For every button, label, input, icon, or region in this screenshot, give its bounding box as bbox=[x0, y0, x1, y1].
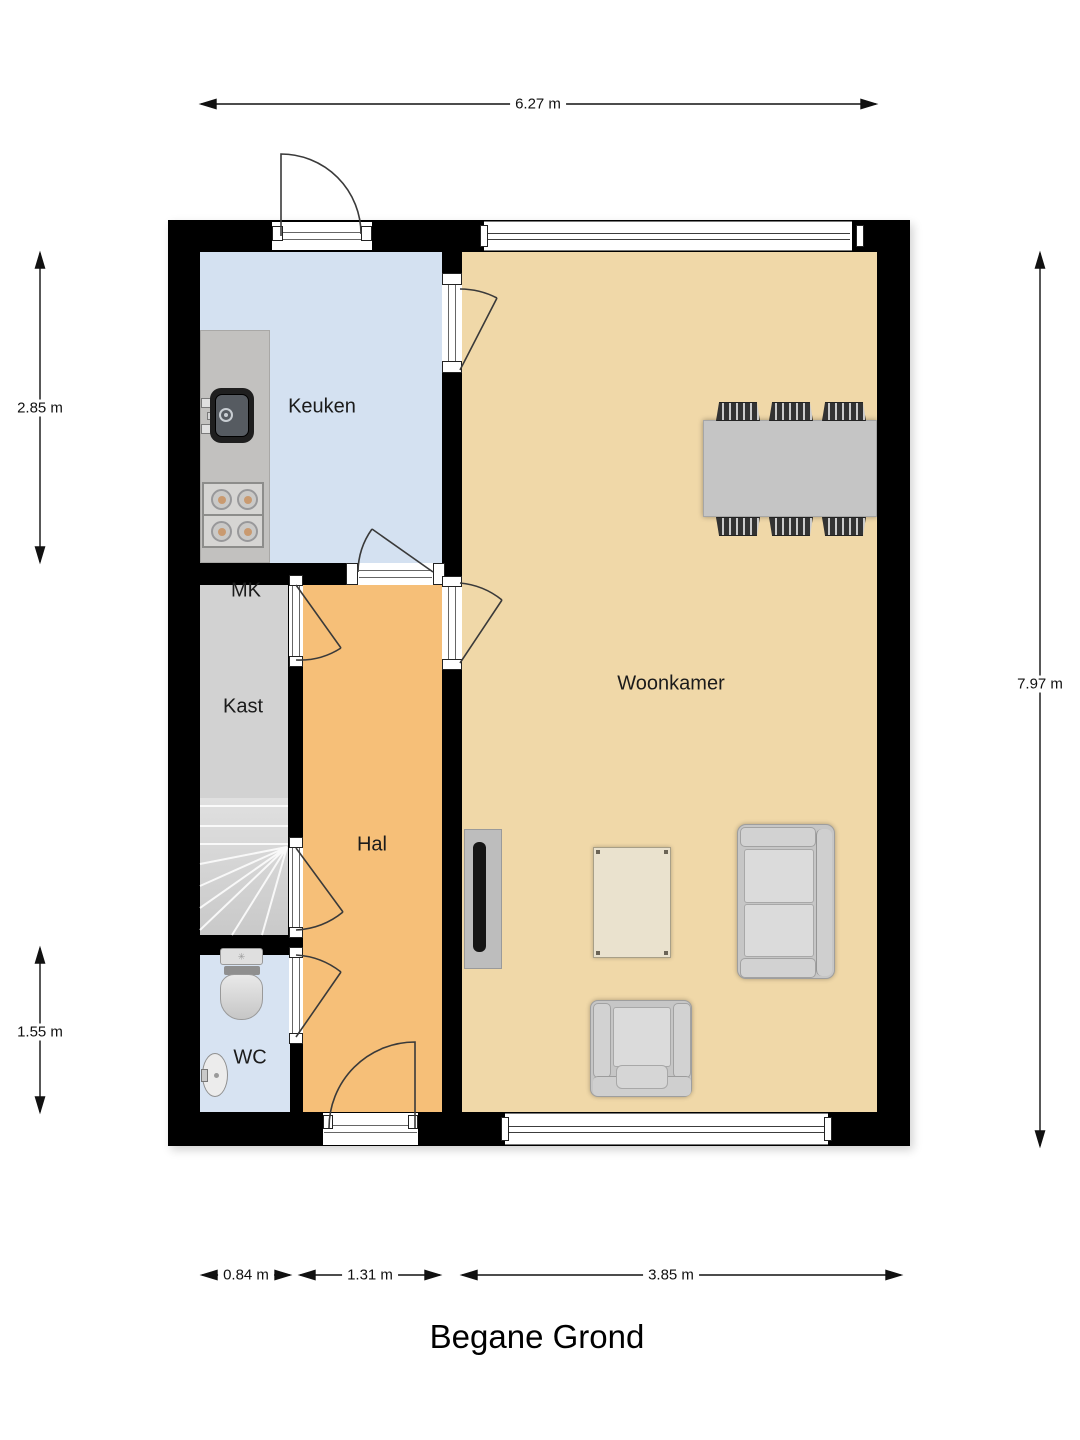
door-jamb bbox=[289, 575, 303, 586]
dining-chair bbox=[716, 402, 760, 421]
door-jamb bbox=[289, 947, 303, 958]
door-jamb bbox=[408, 1115, 418, 1129]
sofa-armrest bbox=[740, 827, 816, 847]
hal-wc-door-opening bbox=[289, 955, 303, 1037]
sofa bbox=[737, 824, 835, 979]
dining-chair bbox=[716, 517, 760, 536]
door-jamb bbox=[272, 226, 283, 241]
dimension-bottom-woonkamer: 3.85 m bbox=[643, 1267, 699, 1284]
floorplan: ✳ bbox=[168, 220, 910, 1146]
room-label-hal: Hal bbox=[357, 834, 387, 857]
door-jamb bbox=[323, 1115, 333, 1129]
stairs bbox=[200, 798, 288, 935]
dimension-bottom-wc: 0.84 m bbox=[218, 1267, 274, 1284]
armchair-seat-front bbox=[616, 1065, 668, 1089]
door-jamb bbox=[289, 927, 303, 938]
window-jamb bbox=[501, 1117, 509, 1141]
sofa-cushion bbox=[744, 849, 814, 903]
dimension-left-lower: 1.55 m bbox=[12, 1024, 68, 1041]
hal-mk-door-opening bbox=[289, 582, 303, 660]
dining-table bbox=[703, 420, 877, 517]
woonkamer-window-bottom bbox=[505, 1113, 828, 1145]
keuken-woonkamer-door-opening bbox=[442, 277, 462, 373]
room-label-woonkamer: Woonkamer bbox=[617, 673, 724, 696]
room-label-wc: WC bbox=[233, 1047, 266, 1070]
door-jamb bbox=[289, 1033, 303, 1044]
front-door-opening bbox=[323, 1113, 418, 1145]
dining-chair bbox=[769, 402, 813, 421]
dimension-right-height: 7.97 m bbox=[1012, 676, 1068, 693]
room-floor-mk-kast bbox=[200, 585, 288, 798]
toilet-flush-icon: ✳ bbox=[221, 952, 262, 961]
door-jamb bbox=[346, 563, 358, 585]
room-label-mk: MK bbox=[231, 580, 261, 603]
armchair-armrest bbox=[593, 1003, 611, 1078]
hal-woonkamer-door-opening bbox=[442, 583, 462, 663]
woonkamer-window-top bbox=[484, 221, 852, 251]
keuken-hal-door-opening bbox=[358, 563, 433, 585]
door-jamb bbox=[289, 656, 303, 667]
floorplan-canvas: ✳ bbox=[0, 0, 1080, 1440]
page-title: Begane Grond bbox=[430, 1318, 645, 1356]
dimension-left-upper: 2.85 m bbox=[12, 400, 68, 417]
armchair bbox=[590, 1000, 692, 1097]
hal-stairs-door-opening bbox=[289, 845, 303, 930]
tv bbox=[473, 842, 486, 952]
sofa-armrest bbox=[740, 958, 816, 978]
door-jamb bbox=[442, 576, 462, 587]
wc-basin bbox=[202, 1053, 228, 1097]
dimension-top-width: 6.27 m bbox=[510, 96, 566, 113]
door-jamb bbox=[361, 226, 372, 241]
window-jamb bbox=[824, 1117, 832, 1141]
dimension-bottom-hal: 1.31 m bbox=[342, 1267, 398, 1284]
door-jamb bbox=[442, 273, 462, 285]
armchair-cushion bbox=[613, 1007, 671, 1067]
dining-chair bbox=[822, 402, 866, 421]
door-jamb bbox=[442, 361, 462, 373]
door-jamb bbox=[442, 659, 462, 670]
dining-chair bbox=[769, 517, 813, 536]
window-jamb bbox=[480, 225, 488, 247]
stove bbox=[202, 482, 264, 548]
kitchen-sink bbox=[210, 388, 254, 443]
room-label-kast: Kast bbox=[223, 696, 263, 719]
toilet-bowl bbox=[220, 974, 263, 1020]
sofa-cushion bbox=[744, 904, 814, 957]
entrance-door-opening bbox=[272, 222, 372, 250]
coffee-table bbox=[593, 847, 671, 958]
room-label-keuken: Keuken bbox=[288, 396, 356, 419]
toilet-tank: ✳ bbox=[220, 948, 263, 965]
dining-chair bbox=[822, 517, 866, 536]
armchair-armrest bbox=[673, 1003, 691, 1078]
sofa-backrest bbox=[816, 829, 832, 976]
door-jamb bbox=[289, 837, 303, 848]
window-jamb bbox=[856, 225, 864, 247]
